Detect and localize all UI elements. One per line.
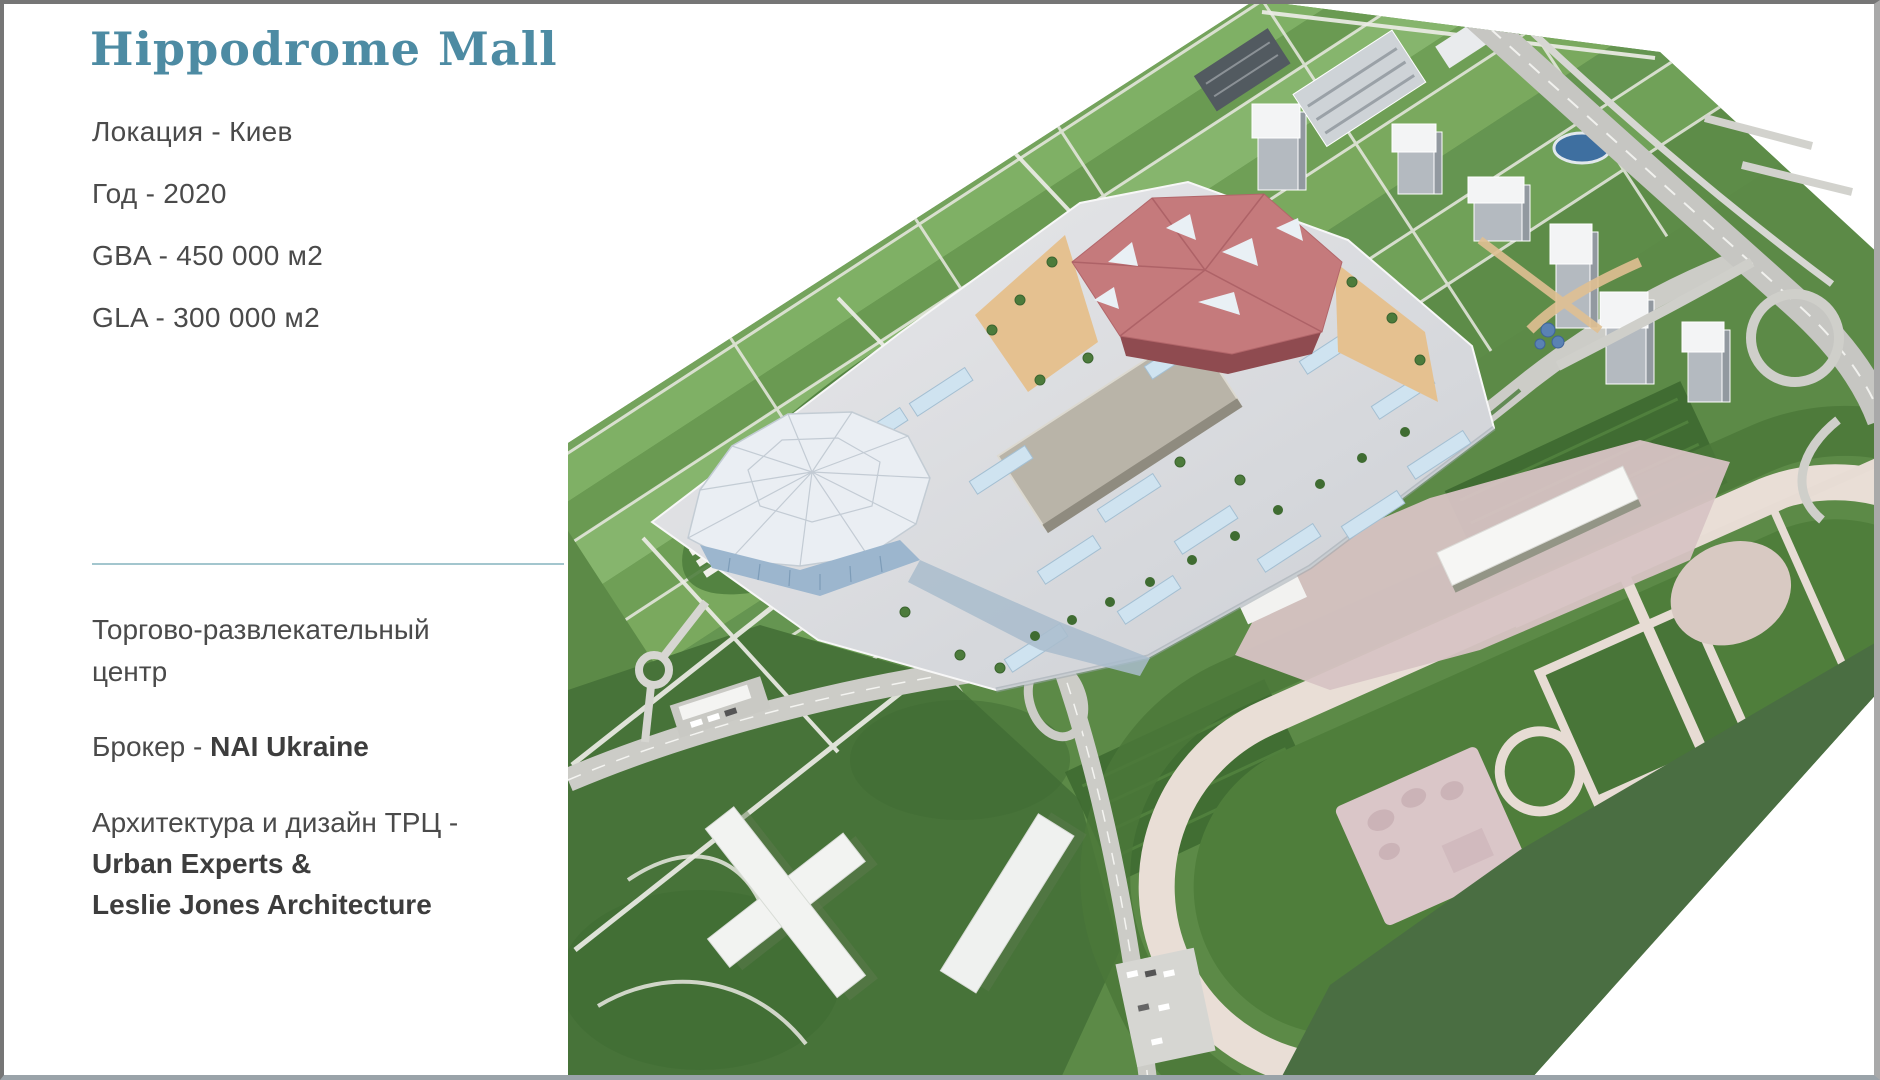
divider-line: [92, 563, 564, 565]
broker-label: Брокер -: [92, 731, 210, 762]
page-title: Hippodrome Mall: [90, 22, 558, 76]
info-panel: Hippodrome Mall Локация - Киев Год - 202…: [4, 4, 564, 1076]
broker-name: NAI Ukraine: [210, 731, 369, 762]
fact-year: Год - 2020: [92, 178, 227, 210]
architecture-label: Архитектура и дизайн ТРЦ -: [92, 802, 458, 843]
fact-gba: GBA - 450 000 м2: [92, 240, 323, 272]
broker-line: Брокер - NAI Ukraine: [92, 731, 369, 763]
fact-location: Локация - Киев: [92, 116, 293, 148]
architecture-block: Архитектура и дизайн ТРЦ - Urban Experts…: [92, 802, 458, 925]
fact-gla: GLA - 300 000 м2: [92, 302, 320, 334]
architecture-firm-1: Urban Experts &: [92, 843, 458, 884]
architecture-firm-2: Leslie Jones Architecture: [92, 884, 458, 925]
presentation-slide: Hippodrome Mall Локация - Киев Год - 202…: [0, 0, 1880, 1080]
project-type: Торгово-развлекательный центр: [92, 609, 512, 693]
